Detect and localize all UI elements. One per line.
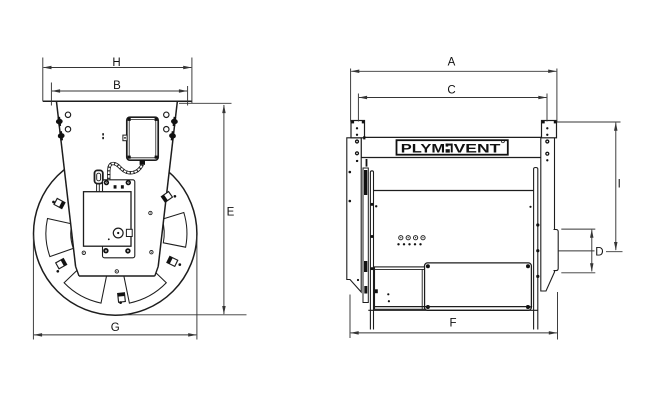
svg-text:B: B bbox=[113, 80, 121, 92]
svg-text:D: D bbox=[595, 247, 603, 259]
svg-text:I: I bbox=[618, 178, 621, 190]
svg-text:H: H bbox=[112, 57, 120, 69]
svg-text:G: G bbox=[111, 322, 120, 334]
svg-text:E: E bbox=[227, 206, 235, 218]
svg-text:A: A bbox=[448, 57, 456, 69]
svg-text:F: F bbox=[449, 318, 456, 330]
svg-text:PLYM: PLYM bbox=[401, 141, 445, 155]
svg-text:VENT: VENT bbox=[454, 141, 502, 155]
svg-text:C: C bbox=[447, 84, 455, 96]
